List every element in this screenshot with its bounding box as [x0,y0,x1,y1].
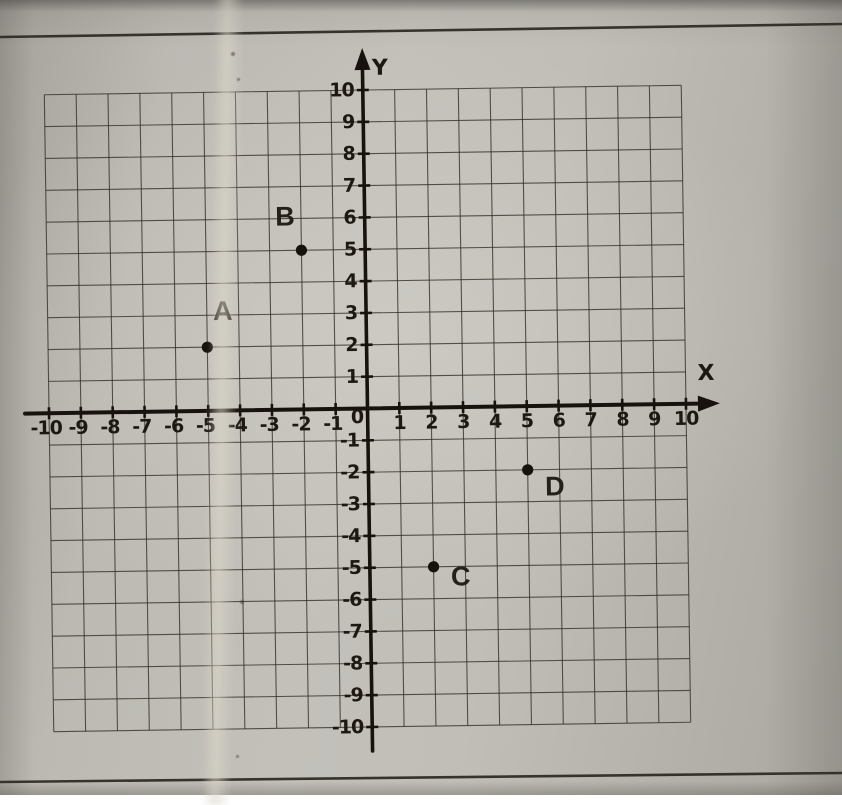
x-tick-label: -2 [291,413,310,435]
paper-speck [236,755,239,758]
x-tick-label: 8 [616,409,629,431]
point-dot-C [428,561,439,572]
graph-svg: -10-9-8-7-6-5-4-3-2-112345678910-10-9-8-… [0,0,842,795]
y-tick-label: 5 [344,238,357,260]
worksheet-photo: -10-9-8-7-6-5-4-3-2-112345678910-10-9-8-… [0,0,842,795]
point-dot-D [522,464,533,475]
point-label-C: C [451,561,471,591]
x-axis-title: X [697,361,714,386]
y-tick-label: 9 [342,111,355,133]
y-axis-title: Y [371,56,389,81]
y-tick-label: -6 [342,589,362,611]
y-tick-label: 8 [342,143,355,165]
point-label-D: D [545,471,565,501]
y-tick-label: -2 [340,461,359,483]
y-tick-label: 1 [346,366,359,388]
y-tick-label: 2 [345,334,358,356]
y-tick-label: 10 [329,79,355,101]
x-tick-label: 4 [489,411,502,433]
photo-bottom-edge-shadow [0,781,842,795]
x-tick-label: 2 [425,411,438,433]
x-tick-label: 6 [553,410,566,432]
x-axis-arrowhead [698,395,720,411]
x-tick-label: -10 [30,417,62,439]
y-tick-label: 7 [343,175,356,197]
y-tick-label: -1 [340,429,359,451]
x-tick-label: 1 [393,412,406,434]
x-tick-label: -7 [132,416,151,438]
y-tick-label: -5 [342,557,361,579]
point-label-B: B [275,201,295,231]
y-tick-label: 3 [345,302,358,324]
y-tick-label: -9 [343,684,362,706]
y-tick-label: -10 [332,716,364,738]
x-tick-label: 7 [584,409,597,431]
photo-top-edge-shadow [0,0,842,12]
labels-layer: Y X 0 [346,51,716,428]
y-axis-arrowhead [354,48,370,70]
x-tick-label: 10 [674,408,700,430]
origin-label: 0 [351,406,364,428]
x-tick-label: 9 [648,408,661,430]
y-tick-label: 6 [343,207,356,229]
x-tick-label: -8 [100,416,120,438]
x-tick-label: -6 [164,415,184,437]
y-axis-line [362,60,372,751]
point-dot-B [296,245,307,256]
paper-speck [231,52,235,56]
y-tick-label: -3 [341,493,360,515]
graph-group: -10-9-8-7-6-5-4-3-2-112345678910-10-9-8-… [20,43,725,756]
x-tick-label: 5 [521,410,534,432]
paper-speck [240,600,244,604]
x-tick-label: 3 [457,411,470,433]
y-tick-label: -4 [341,525,361,547]
y-tick-label: -7 [343,621,362,643]
y-tick-label: 4 [344,270,357,292]
x-tick-label: -9 [68,417,87,439]
plot-layer: -10-9-8-7-6-5-4-3-2-112345678910-10-9-8-… [20,43,725,756]
y-tick-label: -8 [343,652,363,674]
x-tick-label: -3 [259,414,278,436]
paper-speck [237,78,240,81]
top-rule-line [0,24,842,37]
